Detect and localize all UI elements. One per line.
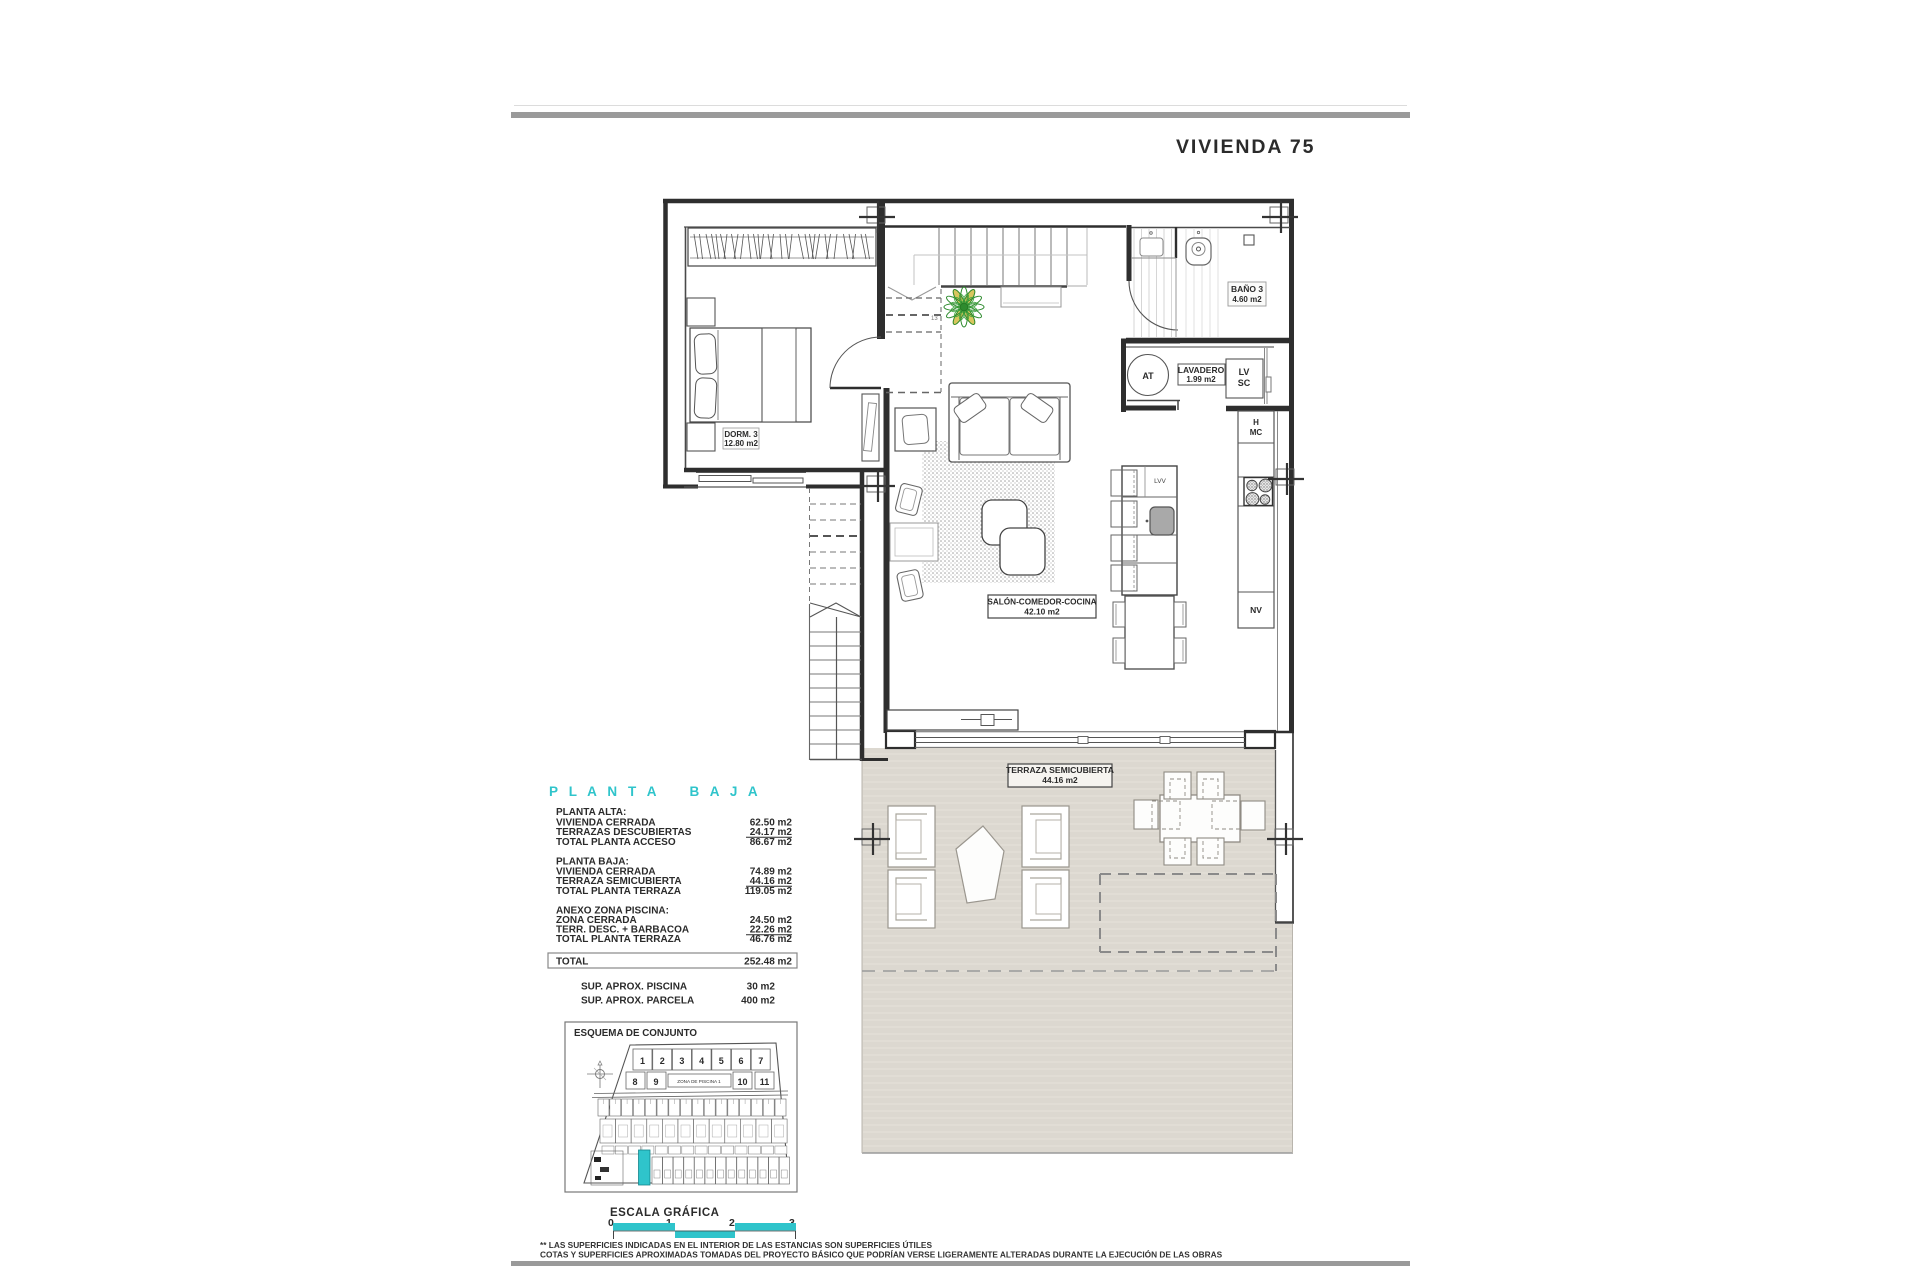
svg-text:86.67 m2: 86.67 m2 xyxy=(750,837,793,848)
svg-text:DORM. 3: DORM. 3 xyxy=(724,430,758,439)
svg-text:LAVADERO: LAVADERO xyxy=(1178,365,1225,375)
svg-text:8: 8 xyxy=(632,1077,637,1087)
svg-text:30 m2: 30 m2 xyxy=(747,982,776,993)
svg-text:TOTAL PLANTA TERRAZA: TOTAL PLANTA TERRAZA xyxy=(556,886,681,897)
svg-text:44.16 m2: 44.16 m2 xyxy=(1042,775,1078,785)
svg-text:H: H xyxy=(1253,418,1259,427)
svg-text:6: 6 xyxy=(738,1056,743,1066)
svg-text:7: 7 xyxy=(758,1056,763,1066)
svg-text:TERRAZA SEMICUBIERTA: TERRAZA SEMICUBIERTA xyxy=(1006,765,1114,775)
svg-text:ESQUEMA DE CONJUNTO: ESQUEMA DE CONJUNTO xyxy=(574,1028,697,1039)
svg-text:13: 13 xyxy=(931,316,938,322)
svg-text:1: 1 xyxy=(640,1056,645,1066)
svg-text:PLANTA ALTA:: PLANTA ALTA: xyxy=(556,807,626,818)
svg-text:2: 2 xyxy=(729,1217,735,1229)
svg-text:400 m2: 400 m2 xyxy=(741,996,775,1007)
svg-text:TOTAL PLANTA ACCESO: TOTAL PLANTA ACCESO xyxy=(556,837,676,848)
svg-text:SC: SC xyxy=(1238,378,1251,388)
svg-text:3: 3 xyxy=(679,1056,684,1066)
svg-text:ZONA DE PISCINA 1: ZONA DE PISCINA 1 xyxy=(677,1079,721,1084)
svg-text:42.10 m2: 42.10 m2 xyxy=(1024,607,1060,617)
svg-text:LV: LV xyxy=(1239,367,1250,377)
svg-text:AT: AT xyxy=(1142,371,1154,381)
svg-text:SALÓN-COMEDOR-COCINA: SALÓN-COMEDOR-COCINA xyxy=(987,596,1096,607)
svg-text:10: 10 xyxy=(737,1077,747,1087)
svg-text:11: 11 xyxy=(760,1077,770,1087)
svg-text:46.76 m2: 46.76 m2 xyxy=(750,934,793,945)
svg-text:SUP. APROX. PISCINA: SUP. APROX. PISCINA xyxy=(581,982,687,993)
svg-text:252.48 m2: 252.48 m2 xyxy=(744,957,792,968)
svg-text:2: 2 xyxy=(660,1056,665,1066)
svg-text:SUP. APROX. PARCELA: SUP. APROX. PARCELA xyxy=(581,996,694,1007)
svg-text:9: 9 xyxy=(653,1077,658,1087)
svg-text:4.60 m2: 4.60 m2 xyxy=(1232,295,1262,304)
svg-text:119.05 m2: 119.05 m2 xyxy=(745,886,793,897)
svg-text:** LAS SUPERFICIES INDICADAS E: ** LAS SUPERFICIES INDICADAS EN EL INTER… xyxy=(540,1239,932,1250)
svg-text:1.99 m2: 1.99 m2 xyxy=(1186,375,1216,384)
svg-text:LVV: LVV xyxy=(1154,478,1166,485)
svg-text:TOTAL PLANTA TERRAZA: TOTAL PLANTA TERRAZA xyxy=(556,934,681,945)
svg-text:12.80 m2: 12.80 m2 xyxy=(724,439,758,448)
svg-text:TOTAL: TOTAL xyxy=(556,957,588,968)
svg-text:MC: MC xyxy=(1250,428,1263,437)
svg-text:COTAS Y SUPERFICIES APROXIMADA: COTAS Y SUPERFICIES APROXIMADAS TOMADAS … xyxy=(540,1249,1223,1260)
svg-text:NV: NV xyxy=(1250,605,1262,615)
svg-text:BAÑO 3: BAÑO 3 xyxy=(1231,284,1263,294)
svg-text:5: 5 xyxy=(719,1056,724,1066)
svg-text:P L A N T A B A J A: P L A N T A B A J A xyxy=(549,784,761,799)
svg-text:ESCALA GRÁFICA: ESCALA GRÁFICA xyxy=(610,1206,719,1219)
svg-text:4: 4 xyxy=(699,1056,704,1066)
